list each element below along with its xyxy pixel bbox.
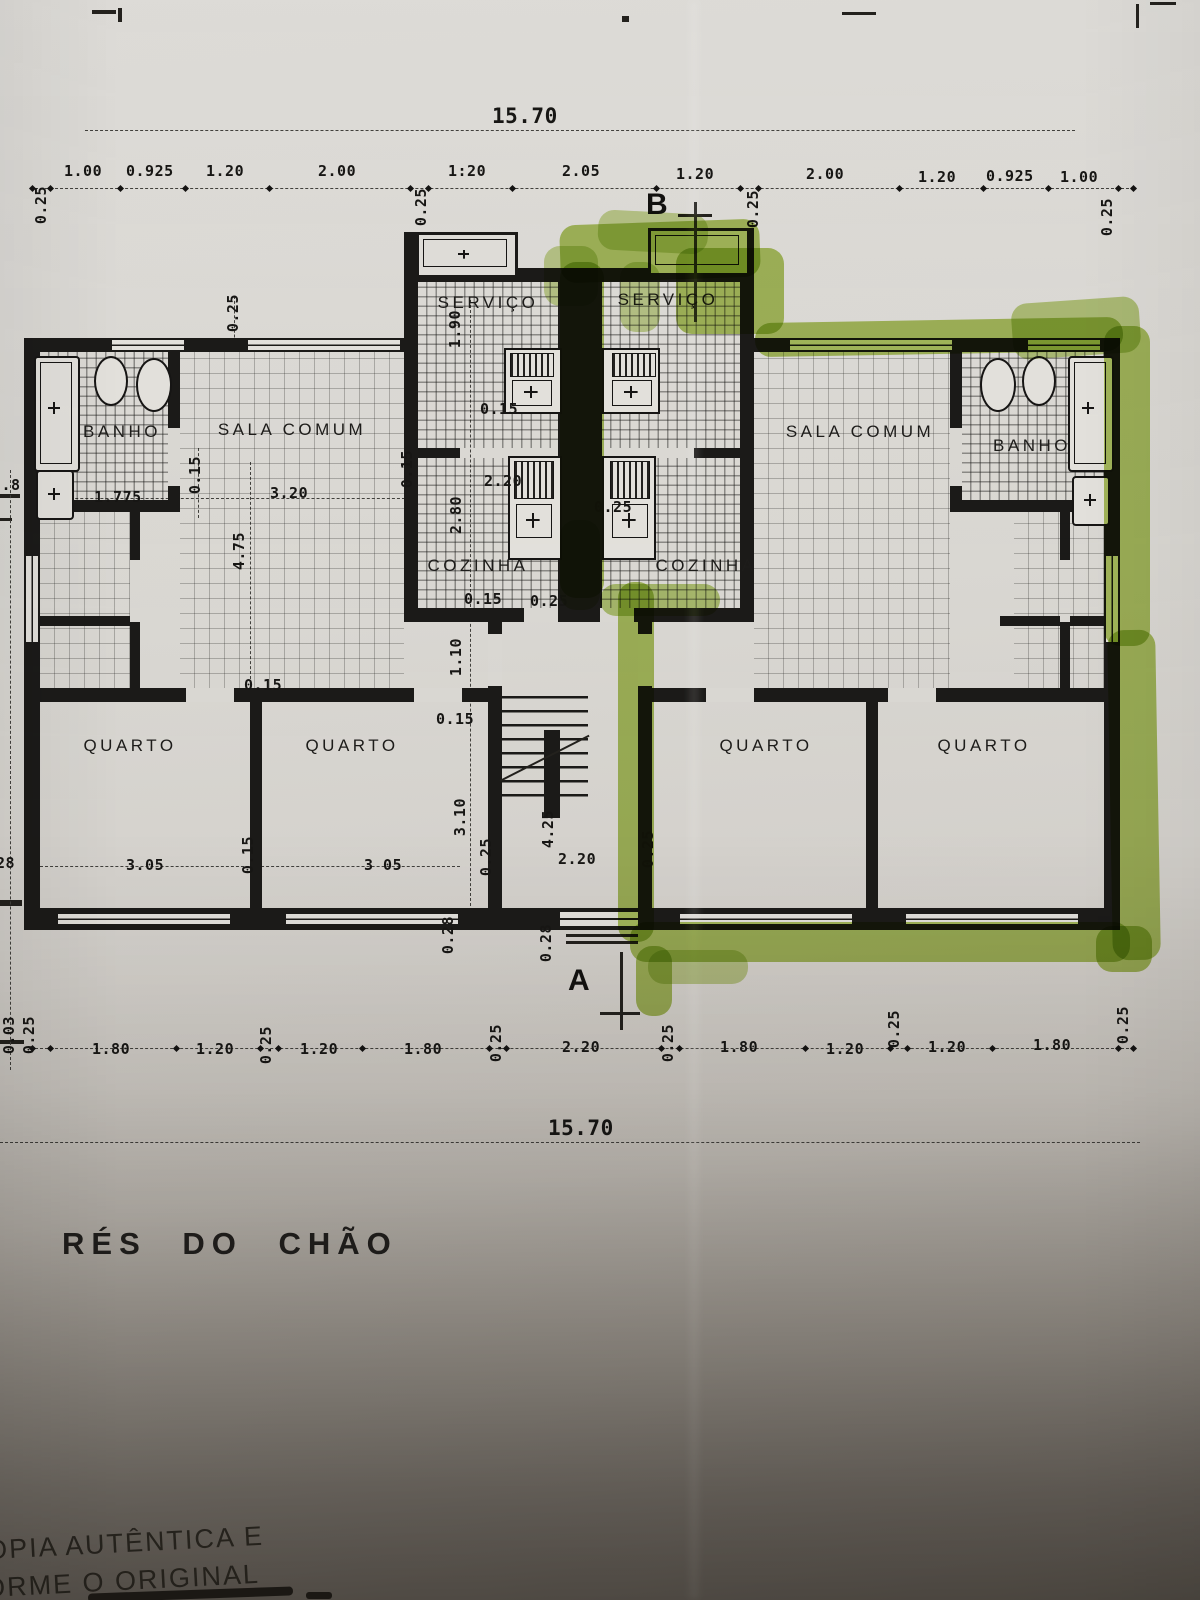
photo-artifact (842, 12, 876, 15)
stair-newel (544, 730, 560, 818)
dimension-label: 0.03 (0, 1016, 18, 1054)
dim-chain-vertical (10, 470, 11, 1070)
dimension-label: 2.05 (562, 162, 600, 180)
dim-line-bottom-overall (0, 1142, 1140, 1143)
floor-hall-left (40, 512, 130, 688)
highlighter-stroke (676, 248, 784, 334)
bidet (36, 470, 74, 520)
room-label: SALA COMUM (786, 422, 934, 442)
dimension-label: 0.15 (239, 836, 257, 874)
photo-artifact (1136, 4, 1139, 28)
highlighter-stroke (1107, 630, 1161, 961)
door-opening (488, 634, 502, 686)
dimension-label: 1.80 (720, 1038, 758, 1056)
dimension-label: 0.25 (224, 294, 242, 332)
tick (676, 1045, 683, 1052)
dimension-label: 0.25 (477, 838, 495, 876)
dimension-label: 0.15 (464, 590, 502, 608)
tick (173, 1045, 180, 1052)
dimension-label: 0.25 (412, 188, 430, 226)
wall-servico-left (404, 268, 418, 622)
section-line-a (620, 952, 623, 1030)
sink (94, 356, 128, 406)
dimension-label: 0.15 (244, 676, 282, 694)
door-opening (414, 688, 462, 702)
dimension-label: 1.80 (404, 1040, 442, 1058)
dimension-label: 0.15 (398, 450, 416, 488)
tick (509, 185, 516, 192)
washer (602, 348, 660, 414)
door-opening (186, 688, 234, 702)
tick (896, 185, 903, 192)
dimension-label: 0.15 (186, 456, 204, 494)
dimension-label: 3.10 (451, 798, 469, 836)
room-label: SALA COMUM (218, 420, 366, 440)
dimension-label: 0.25 (1098, 198, 1116, 236)
dim-line-top-overall (85, 130, 1075, 131)
dimension-label: 3 05 (364, 856, 402, 874)
dimension-label: 0.925 (986, 167, 1034, 185)
photo-artifact (92, 10, 116, 14)
tick (275, 1045, 282, 1052)
dimension-label: 2.8 (0, 476, 21, 494)
tick (1130, 1045, 1137, 1052)
dimension-label: 2.00 (806, 165, 844, 183)
photo-artifact (622, 16, 629, 22)
fixture-mark (522, 508, 544, 532)
floor-hall-right (1014, 512, 1104, 688)
tick (1130, 185, 1137, 192)
dimension-label: 0.25 (32, 186, 50, 224)
tick (904, 1045, 911, 1052)
room-label: BANHO (83, 422, 161, 442)
dim-line-top-chain (30, 188, 1134, 189)
dimension-label: 1.20 (676, 165, 714, 183)
window (286, 912, 458, 926)
door-opening (168, 428, 180, 486)
sink-hatch (610, 461, 650, 499)
window (24, 556, 40, 642)
tick (182, 185, 189, 192)
wall-servico-ledge-right (694, 448, 754, 458)
room-label: COZINHA (428, 556, 529, 576)
photo-artifact (118, 8, 122, 22)
section-tick-a (600, 1012, 640, 1015)
dimension-label: 1.90 (446, 310, 464, 348)
floor-sala-right (754, 352, 950, 688)
dimension-label: 1.20 (928, 1038, 966, 1056)
window (248, 338, 400, 352)
dimension-label: 1.20 (826, 1040, 864, 1058)
dimension-label: 0.15 (436, 710, 474, 728)
tick (989, 1045, 996, 1052)
highlighter-stroke (618, 582, 654, 942)
highlighter-stroke (600, 584, 720, 616)
highlighter-stroke (560, 520, 600, 610)
door-opening (130, 560, 140, 622)
dimension-label: 0.28 (439, 916, 457, 954)
tick (802, 1045, 809, 1052)
dimension-label: 0.25 (487, 1024, 505, 1062)
dimension-label: 1.10 (447, 638, 465, 676)
dimension-label: 2.20 (562, 1038, 600, 1056)
dimension-label: 2.00 (318, 162, 356, 180)
dimension-label: 1.20 (196, 1040, 234, 1058)
door-opening (706, 688, 754, 702)
dimension-label: 4.75 (230, 532, 248, 570)
plan-title: RÉS DO CHÃO (62, 1226, 398, 1262)
room-label: QUARTO (937, 736, 1030, 756)
dimension-label: 28 (0, 854, 15, 872)
dimension-label: 2.80 (447, 496, 465, 534)
door-opening (950, 428, 962, 486)
stamp-cut-line (306, 1592, 332, 1599)
tick (47, 1045, 54, 1052)
floor-plan-photo: RÉS DO CHÃO OPIA AUTÊNTICA E ORME O ORIG… (0, 0, 1200, 1600)
tick (117, 185, 124, 192)
wall-quarto-divider-left (250, 695, 262, 913)
balcony-left (416, 232, 518, 278)
floor-sala-left (180, 352, 404, 688)
sink (1022, 356, 1056, 406)
dimension-label: 1.80 (1033, 1036, 1071, 1054)
window (58, 912, 230, 926)
washer-hatch (612, 353, 656, 377)
dimension-label: 0.25 (659, 1024, 677, 1062)
dimension-label: 2.20 (558, 850, 596, 868)
dimension-label: 1.20 (206, 162, 244, 180)
fixture-mark (44, 484, 64, 504)
dimension-label: 0.25 (885, 1010, 903, 1048)
dimension-label: 1.00 (64, 162, 102, 180)
highlighter-stroke (1104, 326, 1150, 646)
door-opening (888, 688, 936, 702)
stamp-line-1: OPIA AUTÊNTICA E (0, 1521, 265, 1567)
dimension-label: 1.20 (918, 168, 956, 186)
dimension-label: 0.25 (257, 1026, 275, 1064)
dimension-label: 1:20 (448, 162, 486, 180)
photo-artifact (0, 900, 22, 906)
room-label: QUARTO (305, 736, 398, 756)
dimension-label: 3.05 (126, 856, 164, 874)
dimension-label: 3.20 (270, 484, 308, 502)
fixture-mark (620, 382, 642, 402)
drain-mark (1078, 398, 1098, 418)
room-label: SERVIÇO (438, 293, 539, 313)
dimension-label: 0.25 (20, 1016, 38, 1054)
room-label: BANHO (993, 436, 1071, 456)
tick (1045, 185, 1052, 192)
tick (737, 185, 744, 192)
room-label: QUARTO (83, 736, 176, 756)
entrance-step (566, 941, 638, 944)
dimension-label: 0.25 (1114, 1006, 1132, 1044)
dimension-label: 0.15 (480, 400, 518, 418)
dimension-label: 0.28 (537, 924, 555, 962)
dimension-label: 4.25 (539, 810, 557, 848)
fixture-mark (520, 382, 542, 402)
section-marker: A (568, 964, 590, 998)
highlighter-stroke (636, 946, 672, 1016)
dimension-label: 1.20 (300, 1040, 338, 1058)
dimension-label: 0.925 (126, 162, 174, 180)
dimension-label: 2.20 (484, 472, 522, 490)
dimension-label: 1.80 (92, 1040, 130, 1058)
photo-artifact (1150, 2, 1176, 5)
level-mark (455, 247, 473, 261)
dimension-label: 15.70 (548, 1116, 614, 1140)
highlighter-stroke (620, 262, 660, 332)
bathtub (34, 356, 80, 472)
tick (1115, 1045, 1122, 1052)
drain-mark (44, 398, 64, 418)
dimension-label: 15.70 (492, 104, 558, 128)
toilet (136, 358, 172, 412)
dimension-label: 1.00 (1060, 168, 1098, 186)
dimension-label: 1.775 (94, 488, 142, 506)
door-opening (524, 608, 558, 622)
tick (266, 185, 273, 192)
room-label: QUARTO (719, 736, 812, 756)
room-label: COZINHA (656, 556, 757, 576)
washer-hatch (510, 353, 554, 377)
wall-quarto-divider-right (866, 695, 878, 913)
window (112, 338, 184, 352)
tick (980, 185, 987, 192)
fixture-mark (1080, 490, 1100, 510)
tick (359, 1045, 366, 1052)
toilet (980, 358, 1016, 412)
highlighter-stroke (544, 246, 598, 306)
tick (1115, 185, 1122, 192)
